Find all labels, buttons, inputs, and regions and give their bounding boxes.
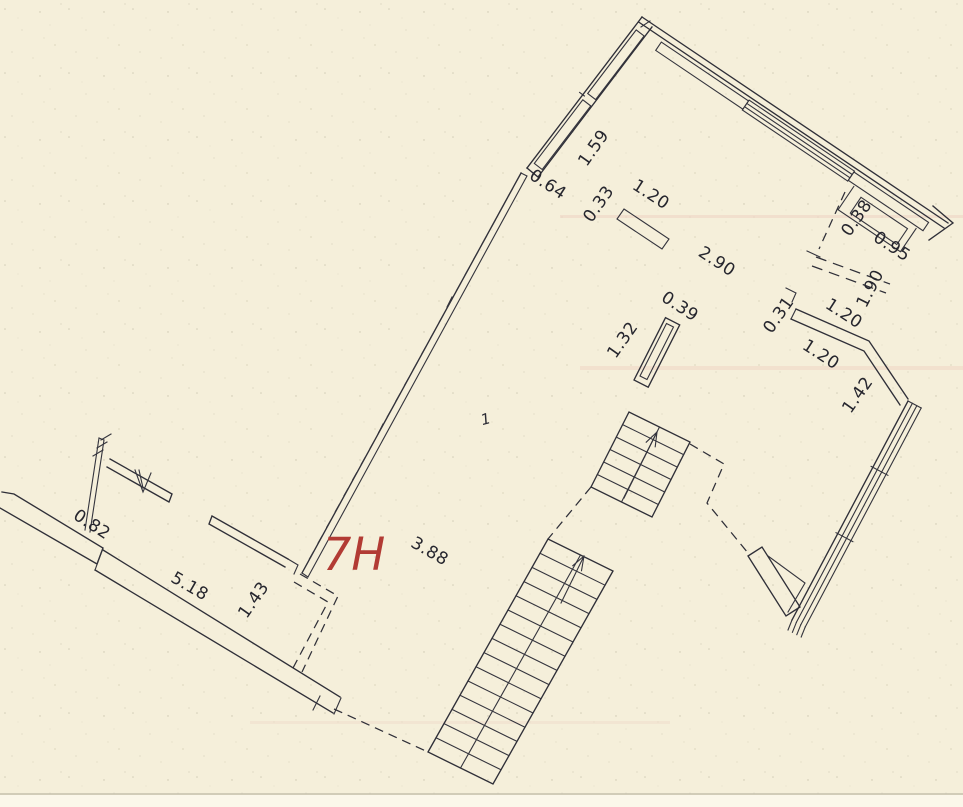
scan-streak [250, 721, 670, 724]
paper-speckles [0, 0, 963, 807]
floor-plan-drawing: 0.641.590.331.202.900.380.951.900.311.20… [0, 0, 963, 807]
page-edge [0, 795, 963, 807]
scan-streak [580, 366, 963, 370]
floor-plan-canvas: 0.641.590.331.202.900.380.951.900.311.20… [0, 0, 963, 807]
unit-zone-label: 7H [323, 528, 385, 581]
paper-background [0, 0, 963, 807]
